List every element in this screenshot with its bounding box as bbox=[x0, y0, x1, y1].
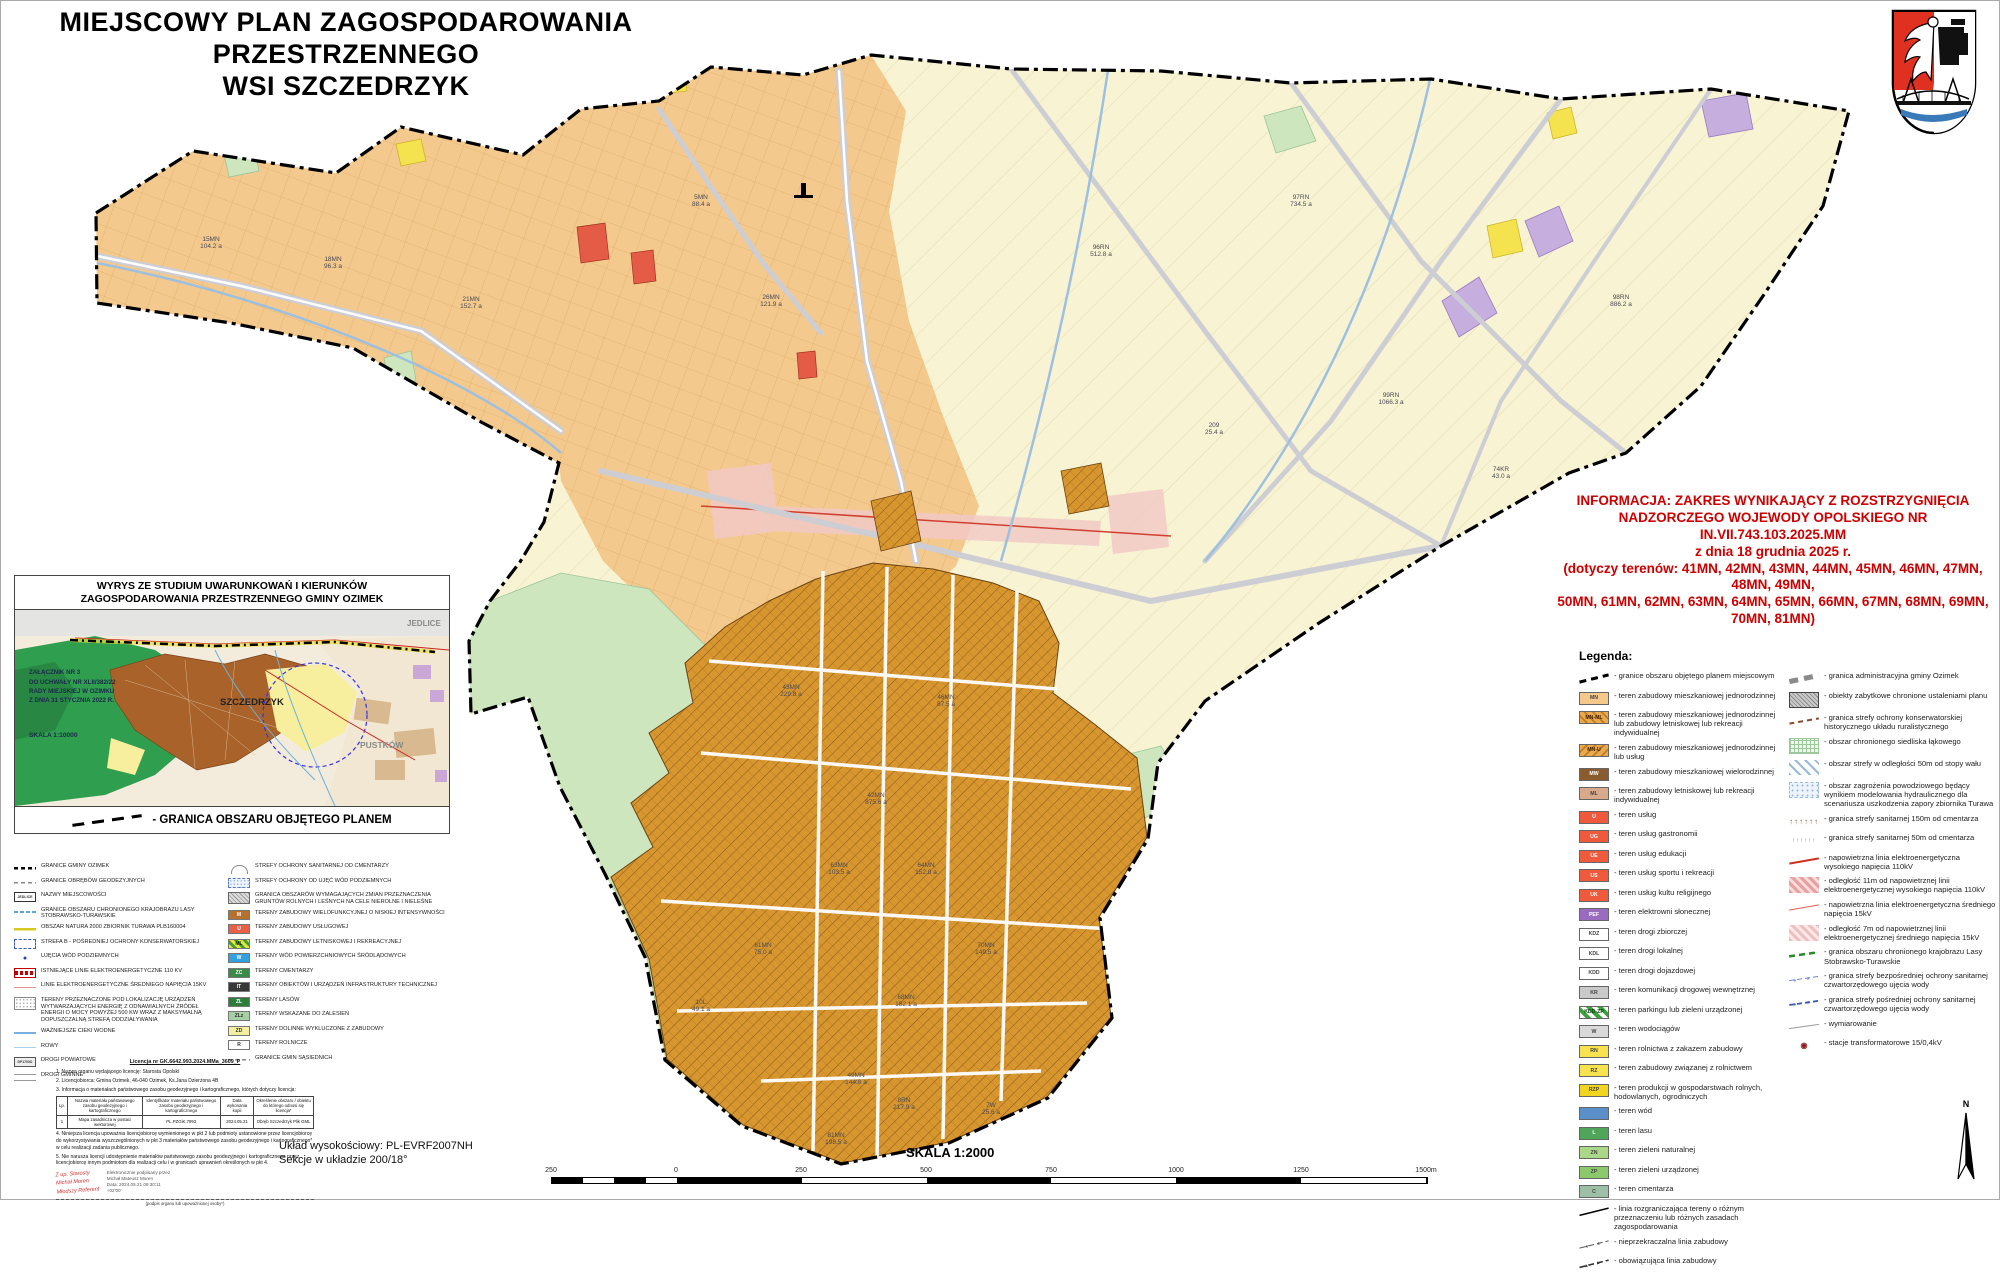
legend-main-col1: - granice obszaru objętego planem miejsc… bbox=[1579, 671, 1779, 1270]
legend-item: - granica strefy pośredniej ochrony sani… bbox=[1789, 995, 1997, 1013]
legend-swatch: ZC bbox=[228, 968, 250, 978]
legend-item: - granice obszaru objętego planem miejsc… bbox=[1579, 671, 1779, 685]
legend-swatch bbox=[228, 892, 250, 904]
legend-item: M TERENY ZABUDOWY WIELOFUNKCYJNEJ O NISK… bbox=[228, 910, 450, 920]
legend-item: - linia rozgraniczająca tereny o różnym … bbox=[1579, 1204, 1779, 1231]
legend-label: STREFY OCHRONY OD UJĘĆ WÓD PODZIEMNYCH bbox=[255, 878, 391, 885]
legend-swatch: MN-ML bbox=[1579, 711, 1609, 724]
legend-swatch bbox=[1578, 1254, 1610, 1274]
legend-label: WAŻNIEJSZE CIEKI WODNE bbox=[41, 1028, 115, 1035]
legend-item: GRANICE OBRĘBÓW GEODEZYJNYCH bbox=[14, 878, 220, 888]
legend-main: Legenda: - granice obszaru objętego plan… bbox=[1579, 649, 1997, 1270]
legend-swatch: C bbox=[1579, 1185, 1609, 1198]
legend-item: ZLz TERENY WSKAZANE DO ZALESIEŃ bbox=[228, 1011, 450, 1021]
legend-swatch bbox=[1788, 898, 1820, 916]
legend-swatch: ZP bbox=[1579, 1166, 1609, 1179]
legend-label: - granica strefy pośredniej ochrony sani… bbox=[1824, 995, 1997, 1013]
legend-label: GRANICE OBSZARU CHRONIONEGO KRAJOBRAZU L… bbox=[41, 907, 220, 920]
legend-item: UJĘCIA WÓD PODZIEMNYCH bbox=[14, 953, 220, 963]
legend-swatch: DP1703O bbox=[14, 1057, 36, 1067]
legend-swatch: IT bbox=[228, 982, 250, 992]
legend-item: ZN - teren zieleni naturalnej bbox=[1579, 1145, 1779, 1159]
legend-label: TERENY LASÓW bbox=[255, 997, 299, 1004]
legend-swatch bbox=[14, 982, 36, 992]
legend-swatch: KDD bbox=[1579, 967, 1609, 980]
legend-label: - teren produkcji w gospodarstwach rolny… bbox=[1614, 1083, 1779, 1101]
legend-item: IT TERENY OBIEKTÓW I URZĄDZEŃ INFRASTRUK… bbox=[228, 982, 450, 992]
legend-swatch: KDZ bbox=[1579, 928, 1609, 941]
legend-heading: Legenda: bbox=[1579, 649, 1997, 663]
legend-label: - teren cmentarza bbox=[1614, 1184, 1674, 1193]
legend-item: U TERENY ZABUDOWY USŁUGOWEJ bbox=[228, 924, 450, 934]
legend-label: - teren usług kultu religijnego bbox=[1614, 888, 1711, 897]
legend-item: - napowietrzna linia elektroenergetyczna… bbox=[1789, 900, 1997, 918]
legend-item: GRANICE GMINY OZIMEK bbox=[14, 863, 220, 873]
scale-bar-label: 750 bbox=[1045, 1167, 1057, 1174]
inset-label-szczedrzyk: SZCZEDRZYK bbox=[220, 697, 284, 708]
legend-swatch bbox=[1789, 738, 1819, 754]
legend-item: ZP - teren zieleni urządzonej bbox=[1579, 1165, 1779, 1179]
legend-swatch: RZ bbox=[1579, 1064, 1609, 1077]
legend-label: - teren usług gastronomii bbox=[1614, 829, 1698, 838]
legend-item: C - teren cmentarza bbox=[1579, 1184, 1779, 1198]
license-p1: 1. Nazwa organu wydającego licencję: Sta… bbox=[56, 1069, 314, 1076]
legend-item: UG - teren usług gastronomii bbox=[1579, 829, 1779, 843]
legend-swatch bbox=[1789, 815, 1819, 828]
legend-item: ZC TERENY CMENTARZY bbox=[228, 968, 450, 978]
legend-swatch: ZLz bbox=[228, 1011, 250, 1021]
legend-swatch bbox=[1788, 711, 1820, 729]
legend-swatch: RN bbox=[1579, 1045, 1609, 1058]
inset-map: SZCZEDRZYK PUSTKÓW JEDLICE ZAŁĄCZNIK NR … bbox=[15, 610, 449, 807]
legend-swatch bbox=[1578, 1234, 1610, 1254]
legend-item: ZD TERENY DOLINNE WYKLUCZONE Z ZABUDOWY bbox=[228, 1026, 450, 1036]
legend-item: - granica administracyjna gminy Ozimek bbox=[1789, 671, 1997, 685]
legend-label: NAZWY MIEJSCOWOŚCI bbox=[41, 892, 106, 899]
legend-swatch bbox=[14, 924, 36, 934]
legend-item: - odległość 11m od napowietrznej linii e… bbox=[1789, 876, 1997, 894]
legend-item: KR - teren komunikacji drogowej wewnętrz… bbox=[1579, 985, 1779, 999]
legend-label: - granica obszaru chronionego krajobrazu… bbox=[1824, 947, 1997, 965]
legend-item: - obszar strefy w odległości 50m od stop… bbox=[1789, 759, 1997, 775]
legend-swatch: W bbox=[228, 953, 250, 963]
legend-label: TERENY ROLNICZE bbox=[255, 1040, 307, 1047]
legend-item: TERENY PRZEZNACZONE POD LOKALIZACJĘ URZĄ… bbox=[14, 997, 220, 1024]
legend-swatch: US bbox=[1579, 869, 1609, 882]
legend-item: KDZ - teren drogi zbiorczej bbox=[1579, 927, 1779, 941]
legend-swatch bbox=[1579, 1107, 1609, 1120]
legend-item: LINIE ELEKTROENERGETYCZNE ŚREDNIEGO NAPI… bbox=[14, 982, 220, 992]
inset-label-jedlice: JEDLICE bbox=[407, 619, 441, 628]
legend-swatch: RZP bbox=[1579, 1084, 1609, 1097]
legend-swatch: ZN bbox=[1579, 1146, 1609, 1159]
legend-label: - teren wodociągów bbox=[1614, 1024, 1680, 1033]
legend-label: - obowiązująca linia zabudowy bbox=[1614, 1256, 1717, 1265]
legend-label: - teren zieleni urządzonej bbox=[1614, 1165, 1699, 1174]
legend-item: - nieprzekraczalna linia zabudowy bbox=[1579, 1237, 1779, 1251]
legend-swatch: PEF bbox=[1579, 908, 1609, 921]
legend-label: - teren zabudowy mieszkaniowej jednorodz… bbox=[1614, 710, 1779, 737]
legend-item: - stacje transformatorowe 15/0,4kV bbox=[1789, 1038, 1997, 1052]
page-title-line1: MIEJSCOWY PLAN ZAGOSPODAROWANIA PRZESTRZ… bbox=[21, 7, 671, 71]
legend-item: R TERENY ROLNICZE bbox=[228, 1040, 450, 1050]
stamp-red-text: Z up. Starosty Michał Moren Młodszy Refe… bbox=[55, 1169, 99, 1197]
legend-item: WAŻNIEJSZE CIEKI WODNE bbox=[14, 1028, 220, 1038]
info-line: (dotyczy terenów: 41MN, 42MN, 43MN, 44MN… bbox=[1549, 561, 1997, 595]
license-p2: 2. Licencjobiorca: Gmina Ozimek, 46-040 … bbox=[56, 1078, 314, 1085]
legend-swatch: UE bbox=[1579, 850, 1609, 863]
legend-swatch bbox=[1789, 782, 1819, 798]
legend-swatch: M bbox=[228, 910, 250, 920]
legend-label: TERENY DOLINNE WYKLUCZONE Z ZABUDOWY bbox=[255, 1026, 384, 1033]
plan-boundary-dash-icon bbox=[73, 814, 143, 827]
legend-swatch: L bbox=[1579, 1127, 1609, 1140]
legend-swatch bbox=[14, 997, 36, 1010]
inset-zalacznik-note: ZAŁĄCZNIK NR 3 DO UCHWAŁY NR XLII/382/22… bbox=[29, 668, 159, 705]
legend-item: ZL TERENY LASÓW bbox=[228, 997, 450, 1007]
legend-label: - stacje transformatorowe 15/0,4kV bbox=[1824, 1038, 1942, 1047]
legend-label: LINIE ELEKTROENERGETYCZNE ŚREDNIEGO NAPI… bbox=[41, 982, 206, 989]
legend-swatch bbox=[228, 863, 250, 873]
legend-label: - teren drogi dojazdowej bbox=[1614, 966, 1695, 975]
map-scale-text: SKALA 1:2000 bbox=[906, 1145, 994, 1160]
legend-label: TERENY ZABUDOWY USŁUGOWEJ bbox=[255, 924, 348, 931]
inset-label-pustkow: PUSTKÓW bbox=[360, 739, 404, 750]
legend-item: - granica strefy bezpośredniej ochrony s… bbox=[1789, 971, 1997, 989]
legend-swatch bbox=[1578, 1202, 1610, 1222]
license-p3: 3. Informacja o materiałach państwowego … bbox=[56, 1087, 314, 1094]
legend-label: - obszar chronionego siedliska łąkowego bbox=[1824, 737, 1961, 746]
legend-label: - granica strefy ochrony konserwatorskie… bbox=[1824, 713, 1997, 731]
info-line: NADZORCZEGO WOJEWODY OPOLSKIEGO NR IN.VI… bbox=[1549, 510, 1997, 544]
legend-swatch: ML bbox=[228, 939, 250, 949]
height-datum-note: Układ wysokościowy: PL-EVRF2007NH Sekcje… bbox=[279, 1139, 473, 1168]
legend-swatch bbox=[14, 1028, 36, 1038]
legend-label: - obszar strefy w odległości 50m od stop… bbox=[1824, 759, 1981, 768]
legend-item: OBSZAR NATURA 2000 ZBIORNIK TURAWA PLB16… bbox=[14, 924, 220, 934]
legend-item: UE - teren usług edukacji bbox=[1579, 849, 1779, 863]
legend-label: - teren wód bbox=[1614, 1106, 1652, 1115]
license-p5: 5. Nie narusza licencji udostępnienie ma… bbox=[56, 1154, 314, 1168]
plan-sheet: 15MN 104.2 a18MN 96.3 a21MN 152.7 a5MN 8… bbox=[0, 0, 2000, 1200]
legend-label: TERENY ZABUDOWY WIELOFUNKCYJNEJ O NISKIE… bbox=[255, 910, 445, 917]
legend-study: GRANICE GMINY OZIMEK GRANICE OBRĘBÓW GEO… bbox=[14, 863, 450, 1082]
legend-swatch: ZD bbox=[228, 1026, 250, 1036]
legend-label: - teren parkingu lub zieleni urządzonej bbox=[1614, 1005, 1742, 1014]
info-line: 50MN, 61MN, 62MN, 63MN, 64MN, 65MN, 66MN… bbox=[1549, 594, 1997, 628]
legend-item: KDD - teren drogi dojazdowej bbox=[1579, 966, 1779, 980]
legend-item: - granica obszaru chronionego krajobrazu… bbox=[1789, 947, 1997, 965]
stamp-gray-text: Elektronicznie podpisany przez Michał Ma… bbox=[107, 1170, 170, 1194]
legend-swatch: UG bbox=[1579, 830, 1609, 843]
legend-item: - teren wód bbox=[1579, 1106, 1779, 1120]
legend-study-col2: STREFY OCHRONY SANITARNEJ OD CMENTARZY S… bbox=[228, 863, 450, 1082]
inset-scale: SKALA 1:10000 bbox=[29, 732, 78, 739]
info-line: z dnia 18 grudnia 2025 r. bbox=[1549, 544, 1997, 561]
table-row: 1 Mapa zasadnicza w postaci wektorowej P… bbox=[57, 1115, 314, 1129]
supervisory-info-box: INFORMACJA: ZAKRES WYNIKAJĄCY Z ROZSTRZY… bbox=[1549, 493, 1997, 628]
north-arrow-icon: N bbox=[1943, 1099, 1989, 1191]
legend-item: ROWY bbox=[14, 1043, 220, 1053]
legend-label: - napowietrzna linia elektroenergetyczna… bbox=[1824, 900, 1997, 918]
legend-label: - obszar zagrożenia powodziowego będący … bbox=[1824, 781, 1997, 808]
scale-bar-label: 0 bbox=[674, 1167, 678, 1174]
legend-item: KDD-ZP - teren parkingu lub zieleni urzą… bbox=[1579, 1005, 1779, 1019]
legend-swatch: KDL bbox=[1579, 947, 1609, 960]
legend-label: - granica administracyjna gminy Ozimek bbox=[1824, 671, 1959, 680]
legend-label: - odległość 7m od napowietrznej linii el… bbox=[1824, 924, 1997, 942]
legend-item: - obszar zagrożenia powodziowego będący … bbox=[1789, 781, 1997, 808]
legend-item: L - teren lasu bbox=[1579, 1126, 1779, 1140]
legend-swatch bbox=[1788, 669, 1820, 688]
inset-title: WYRYS ZE STUDIUM UWARUNKOWAŃ I KIERUNKÓW… bbox=[15, 576, 449, 610]
license-table: Lp. Nazwa materiału państwowego zasobu g… bbox=[56, 1096, 314, 1130]
legend-swatch: ZL bbox=[228, 997, 250, 1007]
legend-item: - odległość 7m od napowietrznej linii el… bbox=[1789, 924, 1997, 942]
legend-item: - granica strefy sanitarnej 150m od cmen… bbox=[1789, 814, 1997, 828]
page-title: MIEJSCOWY PLAN ZAGOSPODAROWANIA PRZESTRZ… bbox=[21, 7, 671, 103]
legend-swatch: MN bbox=[1579, 692, 1609, 705]
inset-footer: - GRANICA OBSZARU OBJĘTEGO PLANEM bbox=[15, 807, 449, 833]
legend-item: UK - teren usług kultu religijnego bbox=[1579, 888, 1779, 902]
legend-item: - obszar chronionego siedliska łąkowego bbox=[1789, 737, 1997, 754]
legend-swatch: U bbox=[1579, 811, 1609, 824]
legend-item: U - teren usług bbox=[1579, 810, 1779, 824]
legend-label: - wymiarowanie bbox=[1824, 1019, 1877, 1028]
legend-label: - teren rolnictwa z zakazem zabudowy bbox=[1614, 1044, 1743, 1053]
legend-label: - teren zabudowy mieszkaniowej wielorodz… bbox=[1614, 767, 1774, 776]
scale-bar-label: 1250 bbox=[1293, 1167, 1309, 1174]
legend-swatch bbox=[1789, 925, 1819, 941]
scale-bar-label: 250 bbox=[545, 1167, 557, 1174]
legend-label: - teren usług edukacji bbox=[1614, 849, 1686, 858]
scale-bar-label: 250 bbox=[795, 1167, 807, 1174]
legend-label: - napowietrzna linia elektroenergetyczna… bbox=[1824, 853, 1997, 871]
legend-item: ISTNIEJĄCE LINIE ELEKTROENERGETYCZNE 110… bbox=[14, 968, 220, 978]
legend-label: - teren zieleni naturalnej bbox=[1614, 1145, 1695, 1154]
legend-item: - napowietrzna linia elektroenergetyczna… bbox=[1789, 853, 1997, 871]
legend-item: - obiekty zabytkowe chronione ustaleniam… bbox=[1789, 691, 1997, 708]
legend-swatch bbox=[1789, 834, 1819, 847]
legend-label: - teren zabudowy mieszkaniowej jednorodz… bbox=[1614, 743, 1779, 761]
inset-footer-label: - GRANICA OBSZARU OBJĘTEGO PLANEM bbox=[152, 814, 391, 826]
legend-swatch: UK bbox=[1579, 889, 1609, 902]
legend-item: STREFY OCHRONY OD UJĘĆ WÓD PODZIEMNYCH bbox=[228, 878, 450, 888]
legend-item: - obowiązująca linia zabudowy bbox=[1579, 1256, 1779, 1270]
scale-bar-label: 1000 bbox=[1168, 1167, 1184, 1174]
legend-label: ROWY bbox=[41, 1043, 58, 1050]
legend-swatch: KR bbox=[1579, 986, 1609, 999]
legend-label: - linia rozgraniczająca tereny o różnym … bbox=[1614, 1204, 1779, 1231]
legend-label: GRANICA OBSZARÓW WYMAGAJĄCYCH ZMIAN PRZE… bbox=[255, 892, 450, 905]
legend-item: RZP - teren produkcji w gospodarstwach r… bbox=[1579, 1083, 1779, 1101]
legend-label: - obiekty zabytkowe chronione ustaleniam… bbox=[1824, 691, 1987, 700]
legend-swatch: W bbox=[1579, 1025, 1609, 1038]
legend-item: GRANICA OBSZARÓW WYMAGAJĄCYCH ZMIAN PRZE… bbox=[228, 892, 450, 905]
legend-label: - teren usług sportu i rekreacji bbox=[1614, 868, 1714, 877]
page-title-line2: WSI SZCZEDRZYK bbox=[21, 71, 671, 103]
license-block: Licencja nr GK.6642.993.2024.MMa_3609_P … bbox=[56, 1059, 314, 1207]
legend-label: - teren zabudowy mieszkaniowej jednorodz… bbox=[1614, 691, 1775, 700]
legend-swatch bbox=[1788, 970, 1820, 987]
legend-label: TERENY WSKAZANE DO ZALESIEŃ bbox=[255, 1011, 349, 1018]
signature-stamp: Z up. Starosty Michał Moren Młodszy Refe… bbox=[56, 1170, 314, 1195]
legend-label: - granice obszaru objętego planem miejsc… bbox=[1614, 671, 1774, 680]
legend-item: - wymiarowanie bbox=[1789, 1019, 1997, 1033]
scale-bar-segments bbox=[551, 1177, 1428, 1184]
legend-swatch: JEDLICE bbox=[14, 892, 36, 902]
north-label: N bbox=[1943, 1099, 1989, 1109]
legend-item: MW - teren zabudowy mieszkaniowej wielor… bbox=[1579, 767, 1779, 781]
legend-item: KDL - teren drogi lokalnej bbox=[1579, 946, 1779, 960]
legend-item: RN - teren rolnictwa z zakazem zabudowy bbox=[1579, 1044, 1779, 1058]
legend-swatch bbox=[14, 1072, 36, 1082]
scale-bar: 2500250500750100012501500m bbox=[551, 1167, 1426, 1185]
legend-item: ML TERENY ZABUDOWY LETNISKOWEJ I REKREAC… bbox=[228, 939, 450, 949]
ozimek-coat-of-arms-icon bbox=[1889, 7, 1979, 137]
legend-swatch bbox=[1788, 946, 1820, 963]
legend-item: STREFA B - POŚREDNIEJ OCHRONY KONSERWATO… bbox=[14, 939, 220, 949]
legend-item: GRANICE OBSZARU CHRONIONEGO KRAJOBRAZU L… bbox=[14, 907, 220, 920]
legend-item: STREFY OCHRONY SANITARNEJ OD CMENTARZY bbox=[228, 863, 450, 873]
scale-bar-label: 500 bbox=[920, 1167, 932, 1174]
legend-swatch: ML bbox=[1579, 787, 1609, 800]
legend-label: - granica strefy bezpośredniej ochrony s… bbox=[1824, 971, 1997, 989]
legend-label: - teren drogi zbiorczej bbox=[1614, 927, 1687, 936]
legend-label: - teren zabudowy związanej z rolnictwem bbox=[1614, 1063, 1752, 1072]
legend-label: - granica strefy sanitarnej 50m od cment… bbox=[1824, 833, 1974, 842]
legend-label: TERENY CMENTARZY bbox=[255, 968, 314, 975]
legend-swatch bbox=[228, 878, 250, 888]
legend-label: TERENY OBIEKTÓW I URZĄDZEŃ INFRASTRUKTUR… bbox=[255, 982, 437, 989]
legend-item: - granica strefy sanitarnej 50m od cment… bbox=[1789, 833, 1997, 847]
legend-swatch bbox=[14, 1043, 36, 1053]
legend-item: - granica strefy ochrony konserwatorskie… bbox=[1789, 713, 1997, 731]
legend-label: - teren lasu bbox=[1614, 1126, 1652, 1135]
legend-swatch: MN-U bbox=[1579, 744, 1609, 757]
legend-swatch bbox=[1789, 760, 1819, 775]
signature-caption: (podpis organu lub upoważnionej osoby*) bbox=[56, 1199, 314, 1207]
legend-swatch bbox=[1789, 1039, 1819, 1052]
legend-label: - teren usług bbox=[1614, 810, 1656, 819]
license-title: Licencja nr GK.6642.993.2024.MMa_3609_P bbox=[56, 1059, 314, 1066]
legend-swatch bbox=[1789, 692, 1819, 708]
legend-label: - teren drogi lokalnej bbox=[1614, 946, 1683, 955]
legend-swatch bbox=[1578, 669, 1610, 689]
scale-bar-label: 1500m bbox=[1415, 1167, 1436, 1174]
legend-label: - teren zabudowy letniskowej lub rekreac… bbox=[1614, 786, 1779, 804]
legend-item: RZ - teren zabudowy związanej z rolnictw… bbox=[1579, 1063, 1779, 1077]
license-p4: 4. Niniejsza licencja upoważnia licencjo… bbox=[56, 1131, 314, 1151]
legend-item: US - teren usług sportu i rekreacji bbox=[1579, 868, 1779, 882]
legend-label: - odległość 11m od napowietrznej linii e… bbox=[1824, 876, 1997, 894]
legend-label: GRANICE GMINY OZIMEK bbox=[41, 863, 109, 870]
legend-label: - granica strefy sanitarnej 150m od cmen… bbox=[1824, 814, 1978, 823]
legend-label: GRANICE OBRĘBÓW GEODEZYJNYCH bbox=[41, 878, 145, 885]
legend-swatch: MW bbox=[1579, 768, 1609, 781]
legend-label: - teren elektrowni słonecznej bbox=[1614, 907, 1710, 916]
legend-label: - nieprzekraczalna linia zabudowy bbox=[1614, 1237, 1728, 1246]
legend-study-col1: GRANICE GMINY OZIMEK GRANICE OBRĘBÓW GEO… bbox=[14, 863, 220, 1082]
legend-item: PEF - teren elektrowni słonecznej bbox=[1579, 907, 1779, 921]
legend-label: TERENY ZABUDOWY LETNISKOWEJ I REKREACYJN… bbox=[255, 939, 401, 946]
legend-label: STREFY OCHRONY SANITARNEJ OD CMENTARZY bbox=[255, 863, 389, 870]
info-line: INFORMACJA: ZAKRES WYNIKAJĄCY Z ROZSTRZY… bbox=[1549, 493, 1997, 510]
legend-item: JEDLICE NAZWY MIEJSCOWOŚCI bbox=[14, 892, 220, 902]
legend-swatch bbox=[14, 907, 36, 917]
legend-item: W TERENY WÓD POWIERZCHNIOWYCH ŚRÓDLĄDOWY… bbox=[228, 953, 450, 963]
legend-swatch bbox=[14, 953, 36, 963]
legend-swatch bbox=[14, 968, 36, 978]
legend-label: UJĘCIA WÓD PODZIEMNYCH bbox=[41, 953, 119, 960]
legend-label: OBSZAR NATURA 2000 ZBIORNIK TURAWA PLB16… bbox=[41, 924, 186, 931]
legend-item: MN - teren zabudowy mieszkaniowej jednor… bbox=[1579, 691, 1779, 705]
legend-swatch: KDD-ZP bbox=[1579, 1006, 1609, 1019]
legend-swatch bbox=[1788, 851, 1820, 869]
legend-swatch bbox=[1789, 877, 1819, 893]
legend-label: TERENY WÓD POWIERZCHNIOWYCH ŚRÓDLĄDOWYCH bbox=[255, 953, 406, 960]
legend-label: STREFA B - POŚREDNIEJ OCHRONY KONSERWATO… bbox=[41, 939, 199, 946]
legend-item: ML - teren zabudowy letniskowej lub rekr… bbox=[1579, 786, 1779, 804]
legend-label: - teren komunikacji drogowej wewnętrznej bbox=[1614, 985, 1755, 994]
legend-label: ISTNIEJĄCE LINIE ELEKTROENERGETYCZNE 110… bbox=[41, 968, 182, 975]
legend-swatch bbox=[14, 863, 36, 873]
legend-swatch bbox=[14, 878, 36, 888]
legend-item: MN-ML - teren zabudowy mieszkaniowej jed… bbox=[1579, 710, 1779, 737]
legend-label: TERENY PRZEZNACZONE POD LOKALIZACJĘ URZĄ… bbox=[41, 997, 220, 1024]
legend-swatch bbox=[1788, 994, 1820, 1011]
legend-swatch: R bbox=[228, 1040, 250, 1050]
legend-swatch: U bbox=[228, 924, 250, 934]
legend-item: W - teren wodociągów bbox=[1579, 1024, 1779, 1038]
legend-item: MN-U - teren zabudowy mieszkaniowej jedn… bbox=[1579, 743, 1779, 761]
legend-swatch bbox=[1788, 1018, 1820, 1035]
study-inset-panel: WYRYS ZE STUDIUM UWARUNKOWAŃ I KIERUNKÓW… bbox=[14, 575, 450, 834]
legend-swatch bbox=[14, 939, 36, 949]
